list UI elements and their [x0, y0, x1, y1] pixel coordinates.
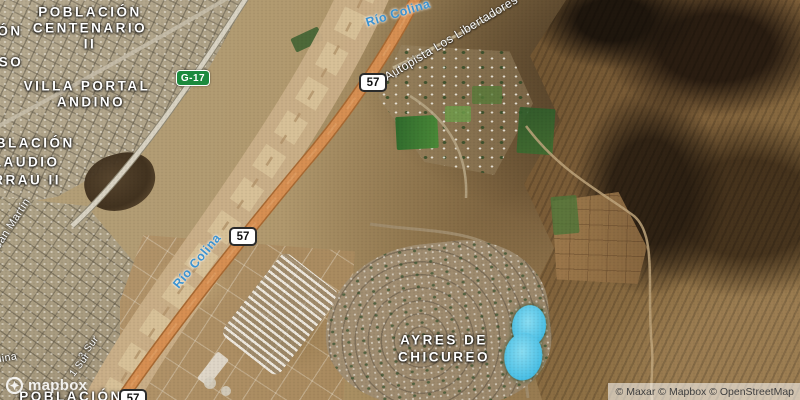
place-label-villa-portal-andino-line1: VILLA PORTAL	[24, 79, 151, 94]
road-shield-57-south: 57	[119, 389, 147, 400]
mapbox-logo-text: mapbox	[28, 377, 87, 394]
place-label-poblacion-claudio-arrau-line2: CLAUDIO	[0, 155, 60, 170]
satellite-map-canvas[interactable]: POBLACIÓN CENTENARIO II ÓN SO VILLA PORT…	[0, 0, 800, 400]
place-label-ayres-de-chicureo-line2: CHICUREO	[398, 350, 490, 365]
mapbox-logo-icon	[5, 376, 24, 395]
place-label-ayres-de-chicureo-line1: AYRES DE	[400, 333, 488, 348]
place-label-poblacion-centenario-line2: CENTENARIO	[33, 21, 147, 36]
chicureo-lagoon	[502, 303, 555, 384]
mapbox-logo[interactable]: mapbox	[5, 376, 87, 395]
place-label-poblacion-centenario-line1: POBLACIÓN	[38, 5, 142, 20]
attribution-text: © Maxar © Mapbox © OpenStreetMap	[616, 386, 794, 398]
road-shield-57-north: 57	[359, 73, 387, 92]
place-label-poblacion-centenario-line3: II	[84, 37, 97, 52]
road-shield-57-mid: 57	[229, 227, 257, 246]
storage-tank	[221, 386, 231, 396]
place-label-partial-so: SO	[0, 55, 23, 70]
place-label-poblacion-claudio-arrau-line1: POBLACIÓN	[0, 136, 75, 151]
map-attribution[interactable]: © Maxar © Mapbox © OpenStreetMap	[608, 383, 800, 400]
place-label-poblacion-claudio-arrau-line3: ARRAU II	[0, 173, 61, 188]
road-minor	[410, 96, 466, 198]
place-label-partial-on: ÓN	[0, 24, 23, 39]
storage-tank	[204, 377, 216, 389]
road-shield-g17: G-17	[176, 70, 210, 86]
place-label-villa-portal-andino-line2: ANDINO	[57, 95, 125, 110]
